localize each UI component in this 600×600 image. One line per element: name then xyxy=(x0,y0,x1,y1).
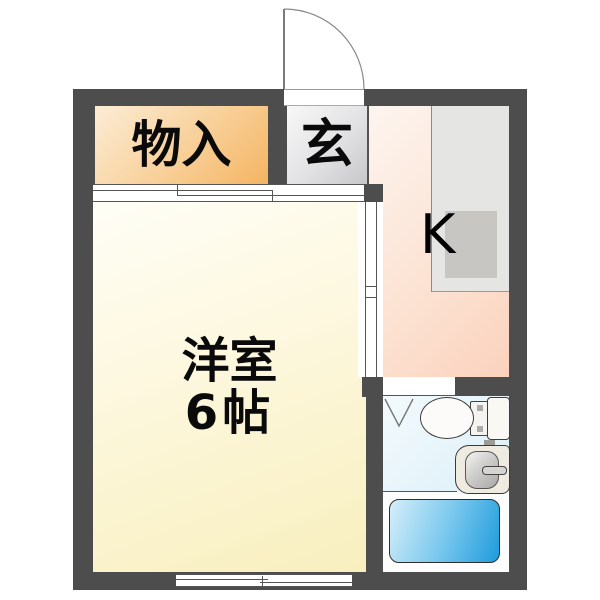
window-sash xyxy=(260,582,352,583)
kitchen-label: K xyxy=(420,208,470,262)
wall-stub xyxy=(362,377,383,397)
closet-label: 物入 xyxy=(132,120,232,170)
sliding-door-tick xyxy=(177,185,178,196)
toilet-tank xyxy=(487,397,510,440)
sliding-door-tick xyxy=(365,297,377,298)
bathtub xyxy=(389,499,500,563)
interior-wall xyxy=(369,397,383,572)
sliding-door-tick xyxy=(272,190,273,201)
window xyxy=(176,574,352,587)
room-kitchen-sliding-door xyxy=(358,202,383,377)
sliding-door-track xyxy=(93,190,273,191)
sliding-door-track xyxy=(177,195,365,196)
floor-plan: 物入 玄 K 洋室 6帖 xyxy=(0,0,600,600)
washroom-door-opening xyxy=(383,377,455,396)
window-sash xyxy=(176,579,268,580)
sliding-door-track xyxy=(365,202,366,377)
western-room-size: 6帖 xyxy=(185,387,274,439)
western-room-name: 洋室 xyxy=(181,335,277,387)
entrance-door-arc xyxy=(283,8,367,92)
door-swing-mark xyxy=(383,398,417,430)
window-sash-tick xyxy=(262,576,263,586)
toilet-hinge xyxy=(477,426,483,432)
sliding-door-tick xyxy=(365,286,377,287)
closet-room: 物入 xyxy=(95,106,268,184)
entrance-room: 玄 xyxy=(287,106,367,184)
western-room: 洋室 6帖 xyxy=(93,202,366,572)
entrance-door-opening xyxy=(284,89,364,106)
bath-divider-line xyxy=(383,491,457,492)
wall-stub xyxy=(364,184,383,202)
sliding-door-track xyxy=(376,202,377,377)
washbasin-faucet xyxy=(482,466,507,475)
toilet-hinge xyxy=(477,405,483,411)
toilet-bowl xyxy=(420,397,474,439)
entrance-label: 玄 xyxy=(301,119,353,171)
closet-sliding-door xyxy=(93,184,365,202)
